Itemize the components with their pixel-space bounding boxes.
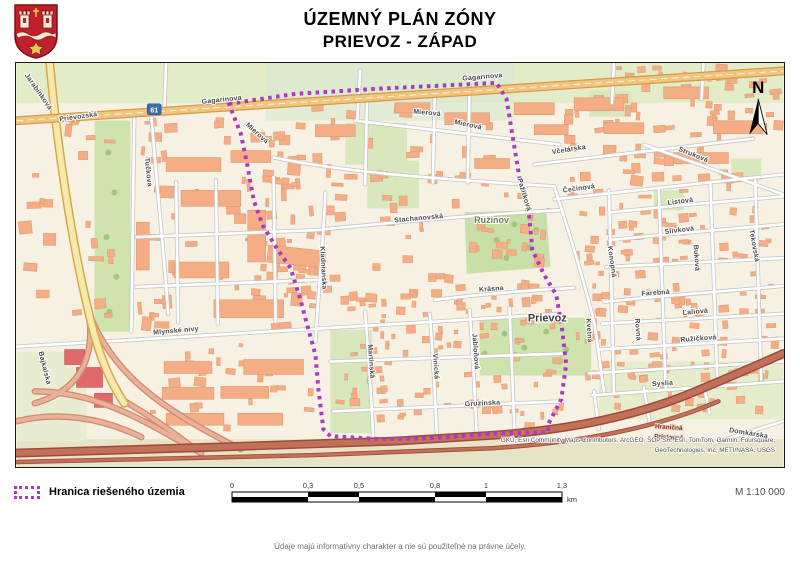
map-canvas: 61 PrievozskáGagarinovaGagarinovaMierová… xyxy=(16,63,784,467)
scalebar-tick: 1,3 xyxy=(557,481,567,490)
svg-text:GKÚ, Esri Community Maps Contr: GKÚ, Esri Community Maps Contributors, A… xyxy=(501,435,776,444)
page-title: ÚZEMNÝ PLÁN ZÓNY PRIEVOZ - ZÁPAD xyxy=(0,8,800,53)
title-line-2: PRIEVOZ - ZÁPAD xyxy=(0,31,800,53)
svg-text:N: N xyxy=(752,78,764,97)
svg-text:GeoTechnologies, Inc, METI/NAS: GeoTechnologies, Inc, METI/NASA, USGS xyxy=(655,447,776,454)
legend: Hranica riešeného územia xyxy=(14,481,185,503)
scalebar: 00,30,50,811,3km xyxy=(226,478,586,513)
scalebar-graphic: 00,30,50,811,3km xyxy=(226,478,586,508)
scalebar-tick: 0,5 xyxy=(354,481,364,490)
route-shield: 61 xyxy=(147,104,161,115)
scalebar-tick: 0,3 xyxy=(303,481,313,490)
scalebar-unit: km xyxy=(567,495,577,504)
place-label: Ružinov xyxy=(474,215,509,225)
scalebar-tick: 0,8 xyxy=(430,481,440,490)
place-label: Prievoz xyxy=(528,313,567,325)
plan-sheet: ÚZEMNÝ PLÁN ZÓNY PRIEVOZ - ZÁPAD xyxy=(0,0,800,565)
street-label: Syslia xyxy=(652,380,674,388)
map-frame: 61 PrievozskáGagarinovaGagarinovaMierová… xyxy=(15,62,785,468)
boundary-legend-swatch xyxy=(14,486,40,499)
map-scale-text: M 1:10 000 xyxy=(705,487,785,498)
scalebar-tick: 0 xyxy=(230,481,234,490)
scalebar-tick: 1 xyxy=(484,481,488,490)
title-line-1: ÚZEMNÝ PLÁN ZÓNY xyxy=(0,8,800,31)
svg-text:61: 61 xyxy=(150,107,158,114)
boundary-legend-label: Hranica riešeného územia xyxy=(49,486,185,498)
disclaimer-text: Údaje majú informatívny charakter a nie … xyxy=(0,542,800,551)
